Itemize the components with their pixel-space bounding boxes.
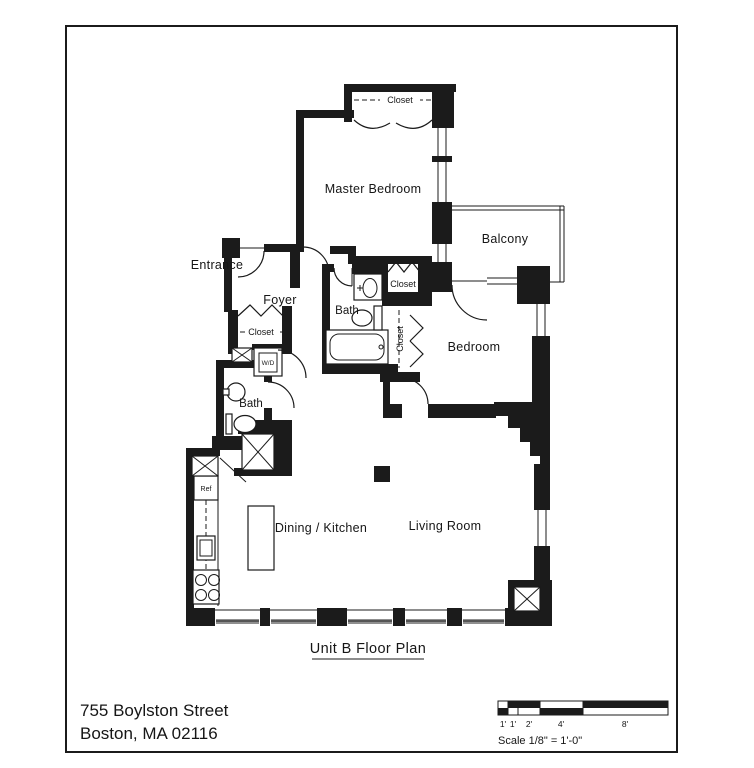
shaft-box <box>242 434 274 470</box>
plan-title-text: Unit B Floor Plan <box>310 641 426 657</box>
bedroom-label: Bedroom <box>448 340 501 354</box>
scale-tick-1: 1' <box>500 719 507 729</box>
window-bottom-1 <box>215 608 260 626</box>
bathtub <box>326 330 388 364</box>
stove <box>193 570 220 604</box>
foyer-label: Foyer <box>263 293 296 307</box>
window-bottom-2 <box>270 608 317 626</box>
master-bath-label: Bath <box>335 305 359 317</box>
living-corner-column <box>514 587 540 611</box>
address-line2: Boston, MA 02116 <box>80 724 218 743</box>
balcony-label: Balcony <box>482 232 529 246</box>
bedroom-closet-label: Closet <box>395 326 405 352</box>
address-block: 755 Boylston Street Boston, MA 02116 <box>80 701 229 743</box>
window-bottom-4 <box>405 608 447 626</box>
master-closet-label: Closet <box>387 95 413 105</box>
address-line1: 755 Boylston Street <box>80 701 229 720</box>
hall-bath-label: Bath <box>239 398 263 410</box>
scale-tick-3: 2' <box>526 719 533 729</box>
kitchen-corner-column <box>192 456 218 476</box>
window-bottom-5 <box>462 608 505 626</box>
scale-tick-2: 1' <box>510 719 517 729</box>
scale-bar: 1' 1' 2' 4' 8' Scale 1/8" = 1'-0" <box>498 701 668 747</box>
window-master-1 <box>432 128 452 156</box>
window-master-3 <box>432 244 452 262</box>
window-master-2 <box>432 162 452 202</box>
plan-title: Unit B Floor Plan <box>310 641 426 659</box>
bedroom-closet-door-2 <box>410 341 423 367</box>
kitchen-island <box>248 506 274 570</box>
hall-bath-door <box>268 382 294 408</box>
column <box>374 466 390 482</box>
washer-dryer-label: W/D <box>262 360 275 367</box>
refrigerator-label: Ref <box>201 486 212 493</box>
window-bedroom-right <box>537 304 545 336</box>
window-bedroom-balcony <box>487 278 517 284</box>
sink-master-bath <box>354 274 382 300</box>
dining-kitchen-label: Dining / Kitchen <box>275 521 367 535</box>
closet-labels: Closet Closet Closet Closet <box>240 92 446 368</box>
toilet-hall-bath <box>226 414 256 434</box>
bedroom-balcony-door <box>452 281 487 320</box>
master-bedroom-label: Master Bedroom <box>325 182 422 196</box>
living-room-label: Living Room <box>409 519 482 533</box>
floor-plan-page: Closet Closet Closet Closet Master Bedro… <box>0 0 754 768</box>
master-closet-doors <box>354 120 432 128</box>
fixtures <box>192 274 540 611</box>
scale-label: Scale 1/8" = 1'-0" <box>498 735 582 747</box>
kitchen-sink <box>197 536 215 560</box>
hall-closet-label: Closet <box>390 279 416 289</box>
foyer-small-column <box>232 348 252 362</box>
window-bottom-3 <box>347 608 393 626</box>
window-living-right <box>538 510 546 546</box>
scale-tick-5: 8' <box>622 719 629 729</box>
entrance-label: Entrance <box>191 258 243 272</box>
bedroom-closet-door-1 <box>410 315 423 341</box>
scale-tick-4: 4' <box>558 719 565 729</box>
foyer-closet-label: Closet <box>248 327 274 337</box>
master-bath-door <box>334 268 352 286</box>
floor-plan-drawing: Closet Closet Closet Closet Master Bedro… <box>0 0 754 768</box>
